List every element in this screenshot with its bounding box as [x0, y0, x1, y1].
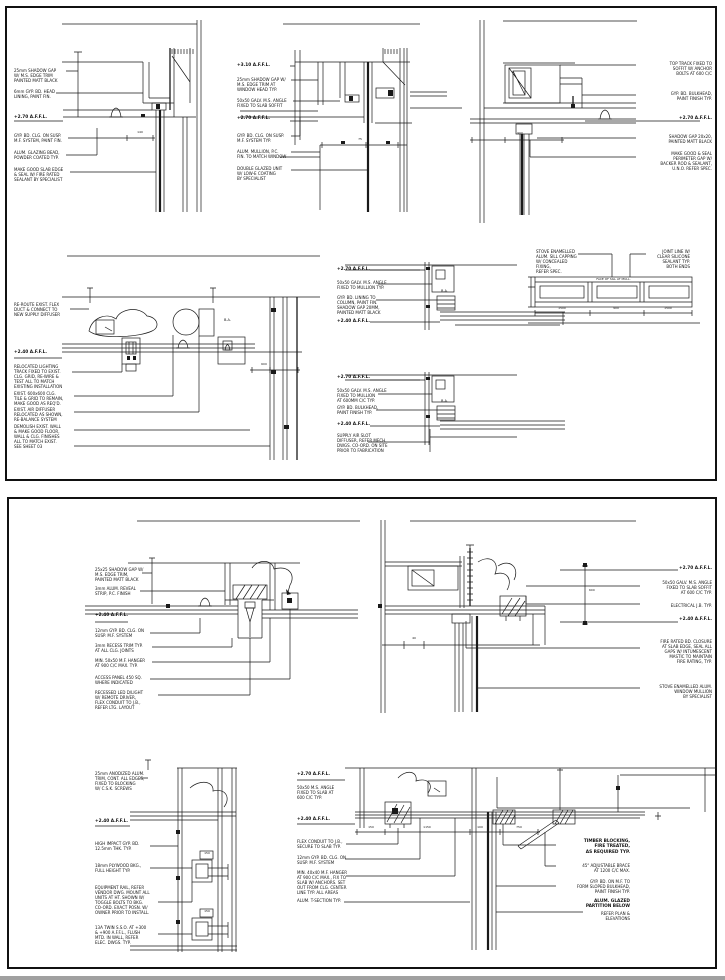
detail-window-head-2	[240, 24, 462, 212]
detail-partition-head	[297, 768, 717, 950]
detail-slab-edge-corner	[378, 520, 678, 713]
detail-mullion-junction-upper	[345, 262, 565, 330]
detail-mullion-junction-lower	[345, 372, 565, 452]
detail-window-head-3	[470, 20, 700, 223]
cad-detail-sheets: 25mm SHADOW GAP W/ M.S. EDGE TRIM PAINTE…	[0, 0, 725, 980]
detail-window-head-1	[14, 20, 201, 212]
detail-ceiling-services-plan	[14, 256, 320, 460]
detail-sill-plan	[528, 254, 700, 323]
detail-recessed-downlight	[85, 521, 360, 695]
detail-equipment-wall	[95, 760, 237, 952]
drawing-linework	[0, 0, 725, 980]
